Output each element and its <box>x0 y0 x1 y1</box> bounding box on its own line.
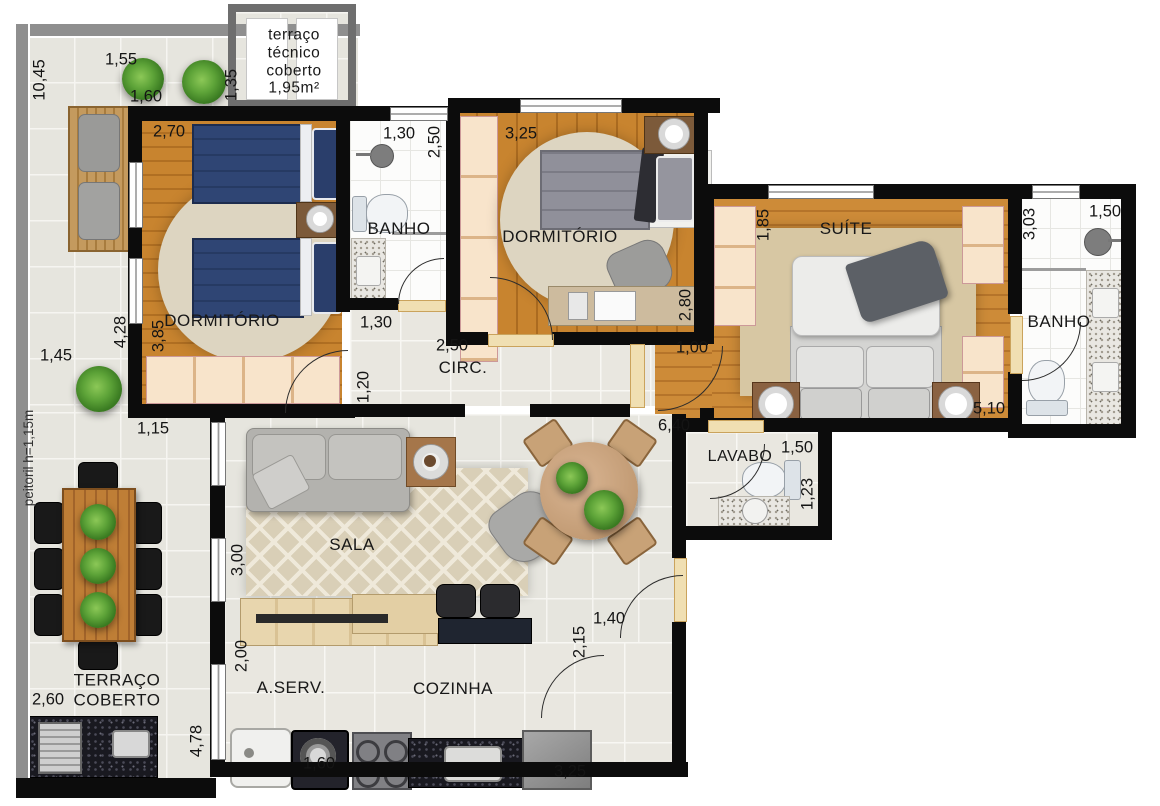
wall <box>336 118 350 312</box>
grill <box>38 722 82 774</box>
plant <box>80 504 116 540</box>
bed-sheet <box>300 124 312 202</box>
terrace-sink <box>112 730 150 758</box>
window <box>211 664 226 760</box>
dim-label: 1,50 <box>1089 203 1121 222</box>
lamp <box>306 205 334 233</box>
bed-sheet <box>300 238 312 316</box>
dim-label: 1,00 <box>676 339 708 358</box>
pillow <box>866 346 934 388</box>
room-label-tecnico: terraço técnico coberto 1,95m² <box>266 26 321 97</box>
dim-label: 1,20 <box>355 371 374 403</box>
wall <box>355 404 465 417</box>
dim-label: 4,28 <box>112 316 131 348</box>
plant <box>80 548 116 584</box>
bench-cushion <box>78 182 120 240</box>
dim-label: 3,25 <box>505 125 537 144</box>
dim-label: 1,23 <box>799 478 818 510</box>
dim-label: 1,50 <box>781 439 813 458</box>
dim-label: 3,85 <box>150 320 169 352</box>
wall <box>446 112 460 346</box>
half-wall <box>1022 268 1086 271</box>
wall <box>818 432 832 540</box>
sink <box>356 256 381 286</box>
floor-circ <box>350 340 655 406</box>
window <box>129 162 143 228</box>
bed-single <box>192 238 304 318</box>
window <box>390 107 448 121</box>
tv <box>256 614 388 623</box>
window <box>520 99 622 113</box>
laptop <box>594 291 636 321</box>
room-label-banho1: BANHO <box>368 219 431 239</box>
wall <box>210 762 688 777</box>
chair <box>34 548 64 590</box>
plant <box>556 462 588 494</box>
sink <box>1092 362 1119 392</box>
tablet <box>568 292 588 320</box>
dim-label: 1,30 <box>383 125 415 144</box>
dim-label: 2,50 <box>436 337 468 356</box>
pillow <box>800 388 862 420</box>
burner <box>356 740 380 764</box>
wall <box>530 404 630 417</box>
plant <box>80 592 116 628</box>
dim-label: 1,30 <box>360 314 392 333</box>
chair <box>132 594 162 636</box>
lamp <box>658 118 690 150</box>
door-sill <box>708 420 764 433</box>
chair <box>34 502 64 544</box>
room-label-aserv: A.SERV. <box>257 678 326 698</box>
dim-label: 1,45 <box>40 347 72 366</box>
room-label-dorm1: DORMITÓRIO <box>164 311 280 331</box>
dim-label: 2,80 <box>677 289 696 321</box>
toilet <box>1026 400 1068 416</box>
window <box>211 538 226 602</box>
chair <box>480 584 520 618</box>
dining-table <box>540 442 638 540</box>
wardrobe <box>714 206 756 326</box>
chair <box>132 548 162 590</box>
dim-label: 3,25 <box>554 763 586 782</box>
sink <box>742 498 768 524</box>
wall <box>1121 184 1136 438</box>
dim-label: 2,00 <box>233 640 252 672</box>
wall <box>686 526 832 540</box>
tub-drain <box>244 748 254 758</box>
window <box>768 185 874 199</box>
plant <box>182 60 226 104</box>
door-sill <box>630 344 645 408</box>
dim-label: 2,70 <box>153 123 185 142</box>
wall <box>700 184 714 344</box>
tv-rack <box>438 618 532 644</box>
note-peitoril: peitoril h=1,15m <box>21 410 37 506</box>
pillow <box>868 388 930 420</box>
lamp <box>938 386 974 422</box>
wall <box>1008 424 1136 438</box>
dim-label: 1,15 <box>137 420 169 439</box>
shower-arm <box>356 153 372 156</box>
shower-arm <box>1108 239 1122 242</box>
floor-plan: terraço técnico coberto 1,95m² DORMITÓRI… <box>0 0 1160 806</box>
wall <box>16 24 30 780</box>
window <box>1032 185 1080 199</box>
room-label-terraco: TERRAÇO COBERTO <box>74 670 161 709</box>
room-label-suite: SUÍTE <box>820 219 873 239</box>
chair <box>78 640 118 670</box>
plant <box>584 490 624 530</box>
dim-label: 1,40 <box>593 610 625 629</box>
wall <box>672 414 686 558</box>
room-label-sala: SALA <box>329 535 374 555</box>
sofa-cushion <box>328 434 402 480</box>
lamp <box>758 386 794 422</box>
laundry-tub <box>230 728 292 788</box>
chair <box>132 502 162 544</box>
dim-label: 1,35 <box>223 69 242 101</box>
room-label-circ: CIRC. <box>439 358 488 378</box>
tray-bowl <box>424 455 436 467</box>
dim-label: 1,55 <box>105 51 137 70</box>
chair <box>34 594 64 636</box>
wall <box>672 622 686 774</box>
dim-label: 1,60 <box>303 755 335 774</box>
dim-label: 2,15 <box>571 626 590 658</box>
sink <box>1092 288 1119 318</box>
chair <box>436 584 476 618</box>
room-label-cozinha: COZINHA <box>413 679 493 699</box>
pillow <box>656 156 694 222</box>
dim-label: 1,60 <box>130 88 162 107</box>
pillow <box>796 346 864 388</box>
room-label-dorm2: DORMITÓRIO <box>502 227 618 247</box>
window <box>129 258 143 324</box>
bed-single <box>192 124 304 204</box>
shower-icon <box>1084 228 1112 256</box>
dim-label: 2,50 <box>426 126 445 158</box>
dim-label: 6,40 <box>658 417 690 436</box>
room-label-lavabo: LAVABO <box>708 448 773 466</box>
dim-label: 5,10 <box>973 400 1005 419</box>
dim-label: 3,03 <box>1021 208 1040 240</box>
dim-label: 4,78 <box>188 725 207 757</box>
dim-label: 1,85 <box>755 209 774 241</box>
plant <box>76 366 122 412</box>
dim-label: 10,45 <box>31 59 50 100</box>
shower-icon <box>370 144 394 168</box>
dim-label: 2,60 <box>32 691 64 710</box>
dim-label: 3,00 <box>229 544 248 576</box>
toilet <box>352 196 367 232</box>
burner <box>384 740 408 764</box>
wall <box>350 298 398 310</box>
window <box>211 422 226 486</box>
room-label-banho2: BANHO <box>1028 312 1091 332</box>
wall <box>16 778 216 798</box>
wardrobe <box>962 206 1004 284</box>
bench-cushion <box>78 114 120 172</box>
